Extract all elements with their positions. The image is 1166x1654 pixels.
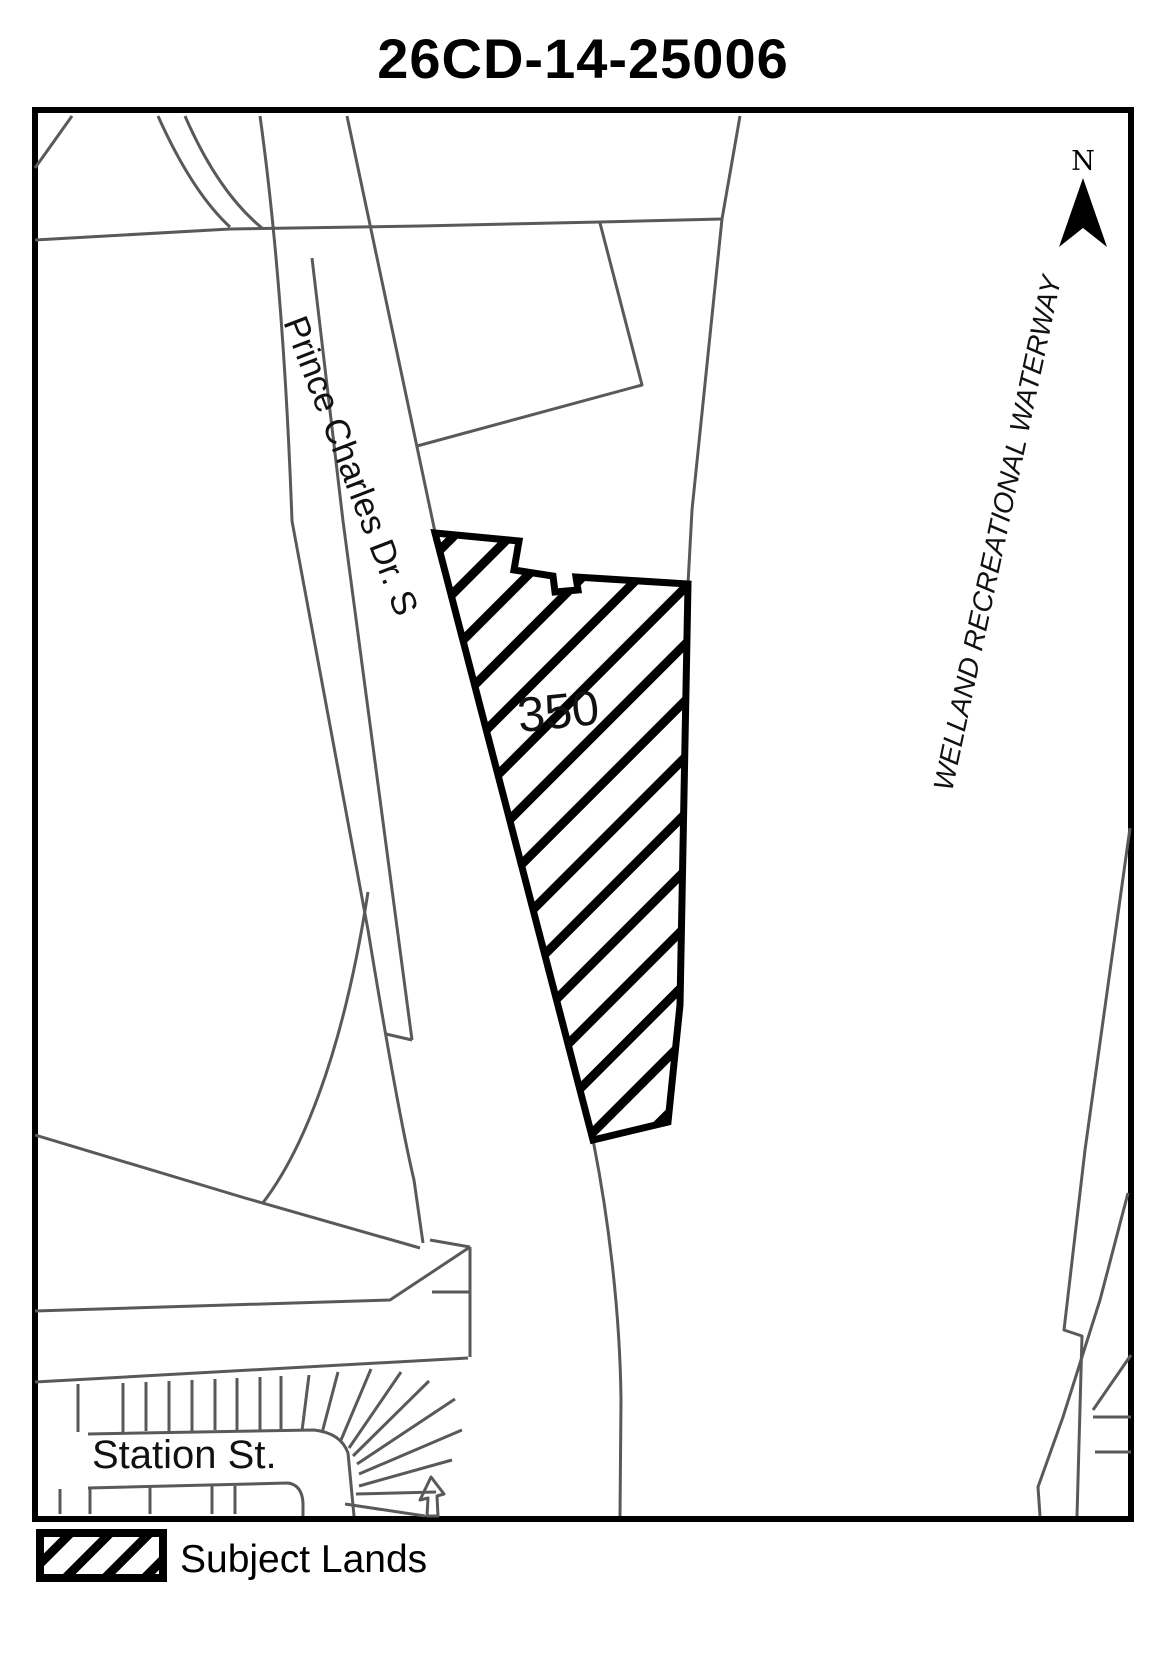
planning-map-page: 26CD-14-25006 350 Prince Charles Dr. S — [0, 0, 1166, 1654]
page-title: 26CD-14-25006 — [377, 27, 788, 90]
subject-lands-swatch — [40, 1533, 163, 1578]
station-street-label: Station St. — [92, 1433, 277, 1477]
north-arrow-label: N — [1071, 146, 1095, 177]
parcel-number-label: 350 — [515, 681, 602, 743]
legend-subject-lands-label: Subject Lands — [180, 1538, 427, 1581]
site-map: 26CD-14-25006 350 Prince Charles Dr. S — [0, 0, 1166, 1654]
legend: Subject Lands — [40, 1533, 427, 1581]
